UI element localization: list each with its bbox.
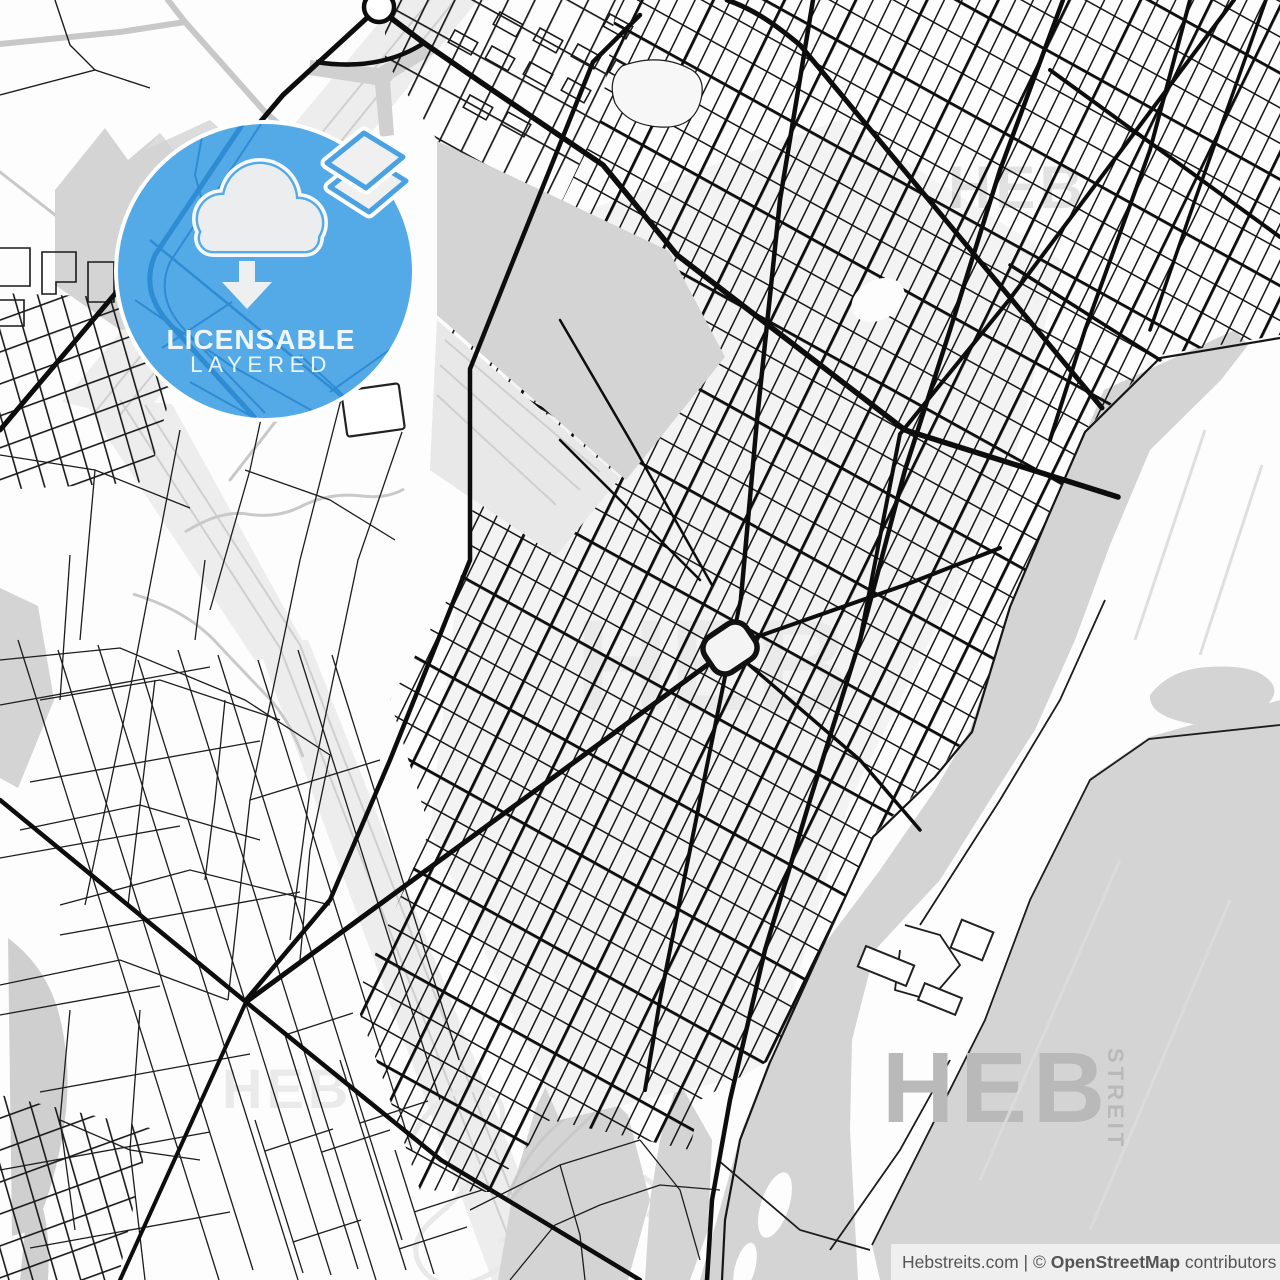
svg-text:LICENSABLE: LICENSABLE — [167, 324, 356, 355]
svg-text:HEB: HEB — [222, 1057, 352, 1120]
svg-text:STREIT: STREIT — [1103, 1048, 1128, 1150]
svg-text:Hebstreits.com | © OpenStreetM: Hebstreits.com | © OpenStreetMap contrib… — [902, 1252, 1277, 1272]
svg-text:LAYERED: LAYERED — [190, 352, 332, 377]
svg-text:HEB: HEB — [948, 154, 1087, 221]
svg-text:HEB: HEB — [882, 1032, 1111, 1144]
